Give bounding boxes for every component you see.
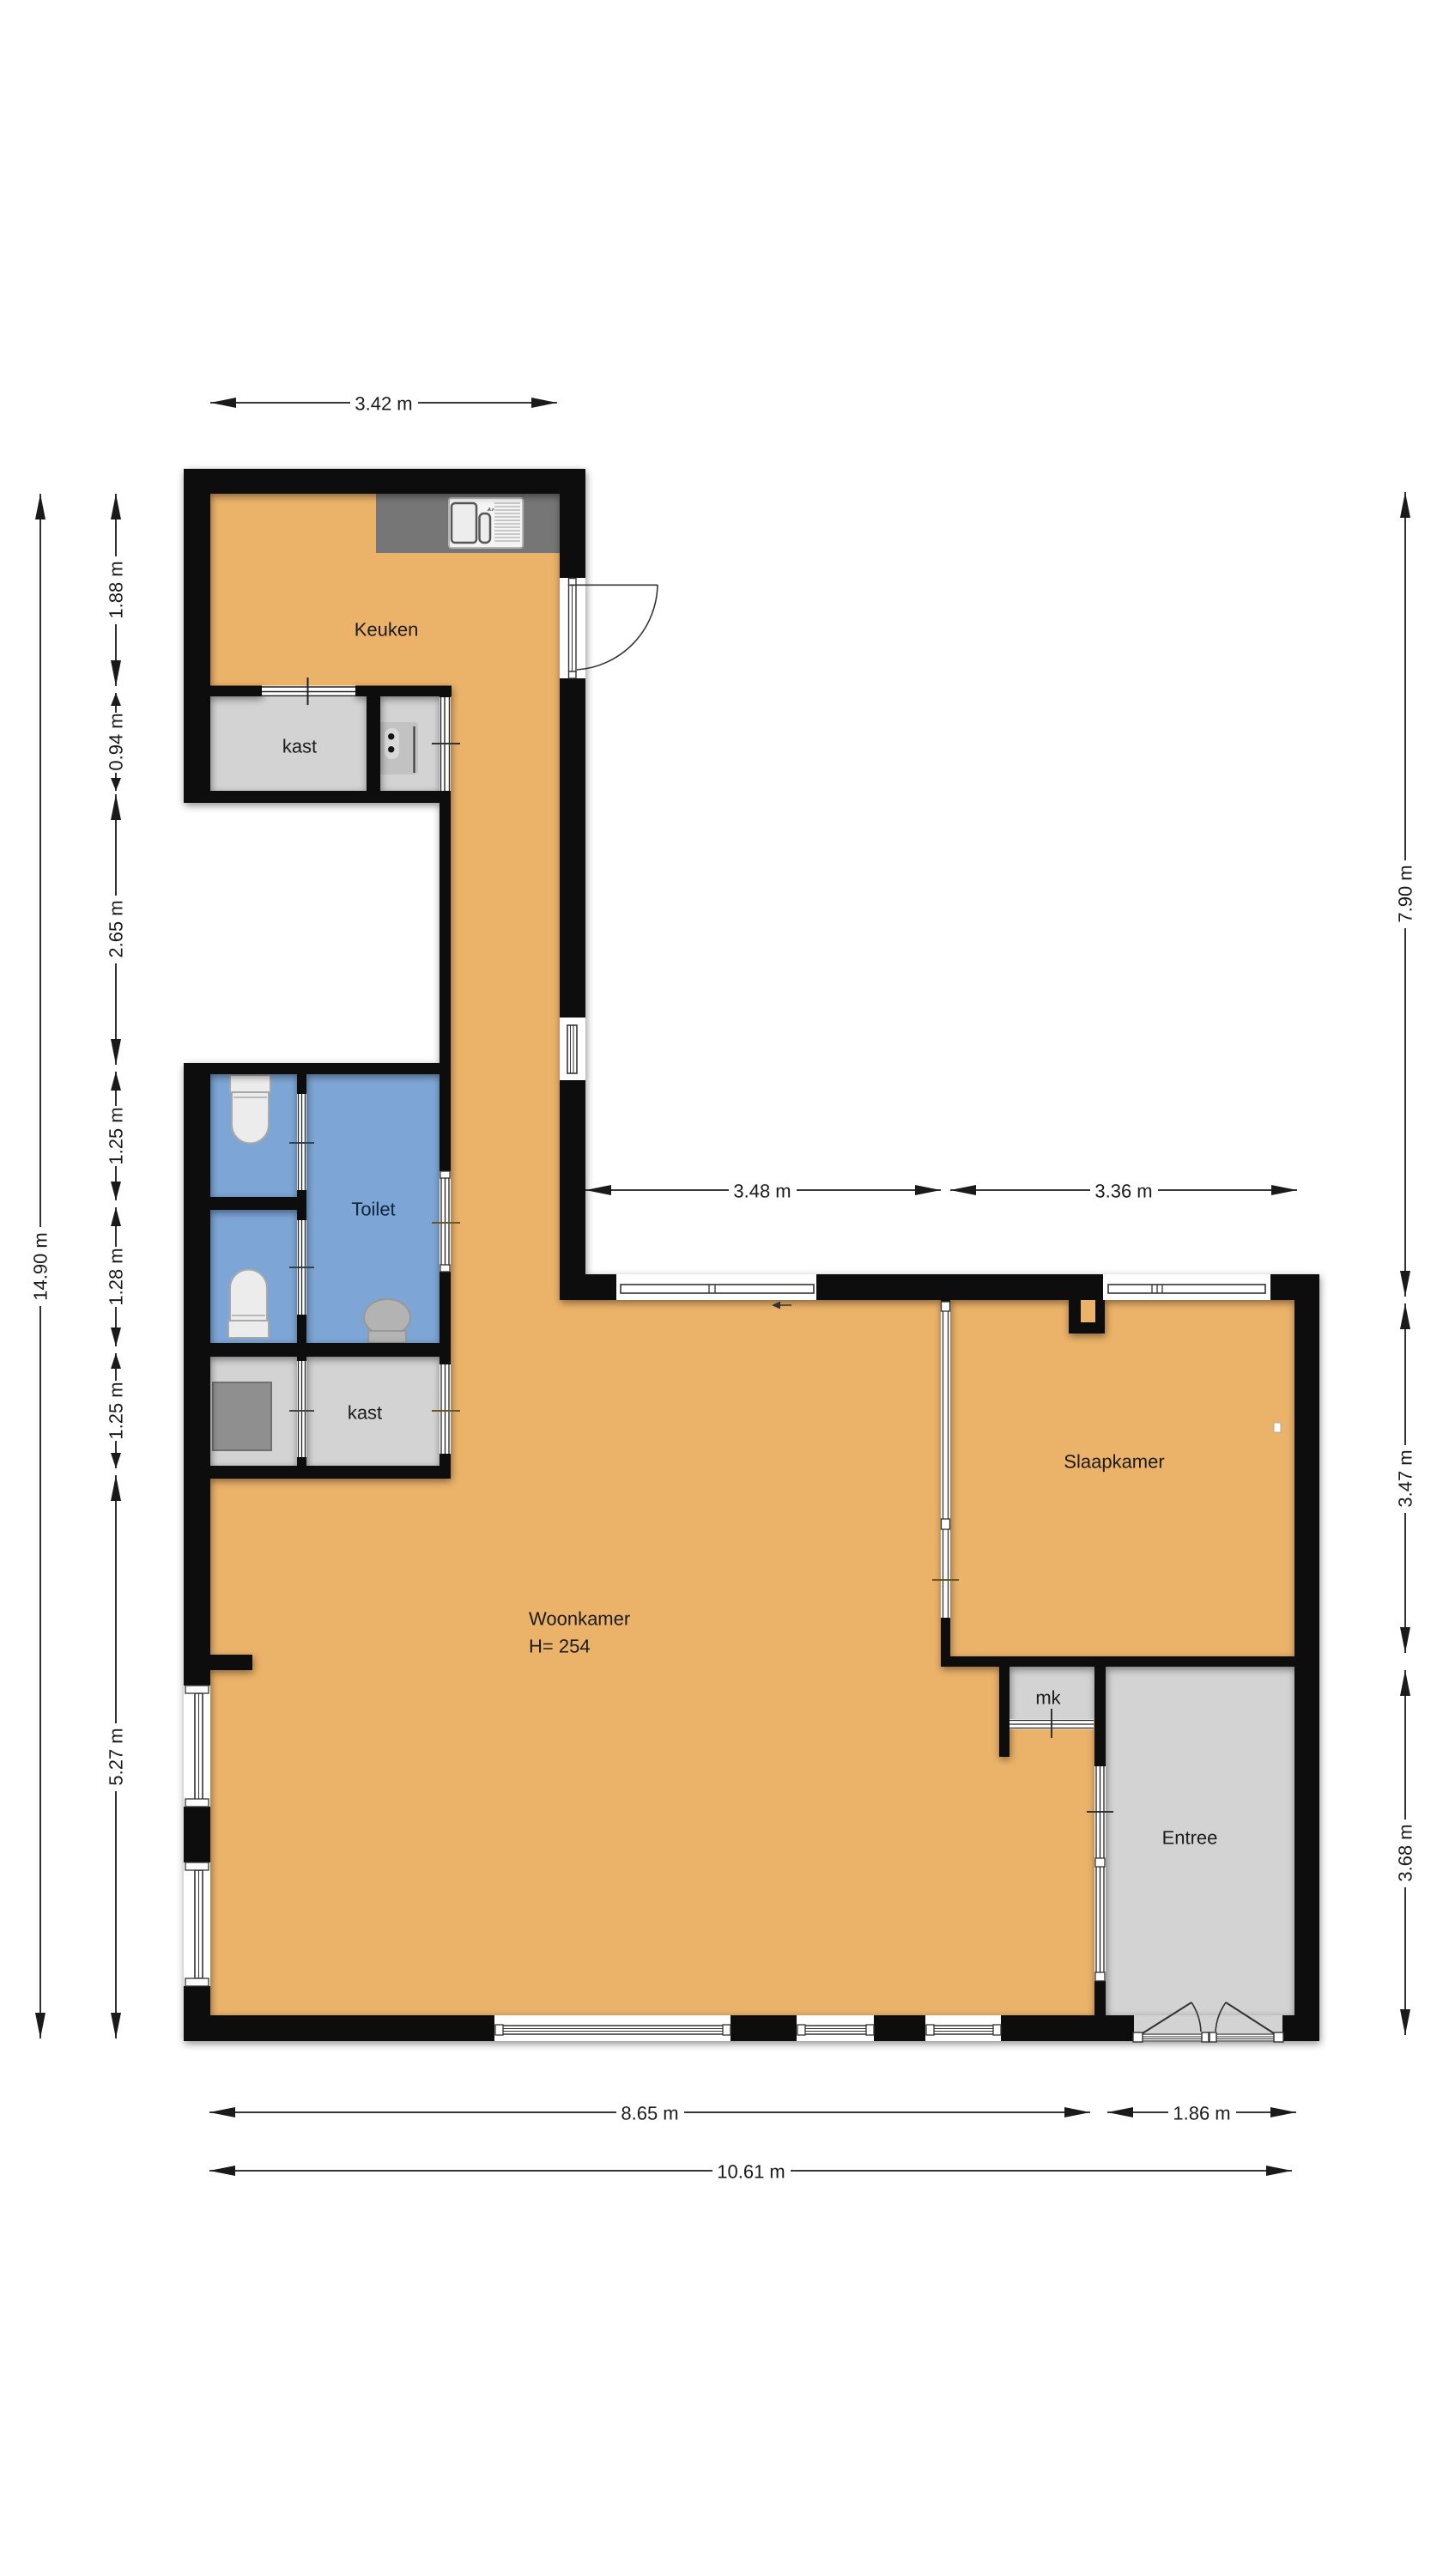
svg-text:10.61 m: 10.61 m	[717, 2161, 785, 2183]
svg-text:kast: kast	[348, 1402, 382, 1424]
svg-text:8.65 m: 8.65 m	[621, 2103, 678, 2124]
svg-text:kast: kast	[282, 736, 317, 757]
svg-text:Slaapkamer: Slaapkamer	[1064, 1451, 1164, 1473]
svg-text:mk: mk	[1035, 1687, 1061, 1709]
svg-text:1.28 m: 1.28 m	[106, 1248, 127, 1305]
svg-text:3.42 m: 3.42 m	[355, 393, 412, 415]
svg-text:Woonkamer: Woonkamer	[529, 1608, 630, 1630]
svg-text:7.90 m: 7.90 m	[1395, 865, 1416, 922]
svg-text:2.65 m: 2.65 m	[106, 900, 127, 957]
svg-text:H= 254: H= 254	[529, 1636, 591, 1657]
svg-text:3.36 m: 3.36 m	[1094, 1181, 1152, 1202]
svg-text:1.25 m: 1.25 m	[106, 1382, 127, 1439]
svg-text:5.27 m: 5.27 m	[106, 1728, 127, 1785]
svg-text:Toilet: Toilet	[351, 1199, 395, 1220]
svg-text:3.68 m: 3.68 m	[1395, 1824, 1416, 1881]
svg-text:3.47 m: 3.47 m	[1395, 1449, 1416, 1507]
svg-text:Entree: Entree	[1162, 1827, 1218, 1849]
svg-text:0.94 m: 0.94 m	[106, 713, 127, 770]
svg-text:14.90 m: 14.90 m	[30, 1232, 52, 1301]
svg-text:Keuken: Keuken	[355, 619, 419, 641]
svg-text:1.25 m: 1.25 m	[106, 1107, 127, 1164]
svg-text:1.86 m: 1.86 m	[1173, 2103, 1230, 2124]
svg-text:3.48 m: 3.48 m	[733, 1181, 791, 1202]
svg-text:1.88 m: 1.88 m	[106, 561, 127, 618]
